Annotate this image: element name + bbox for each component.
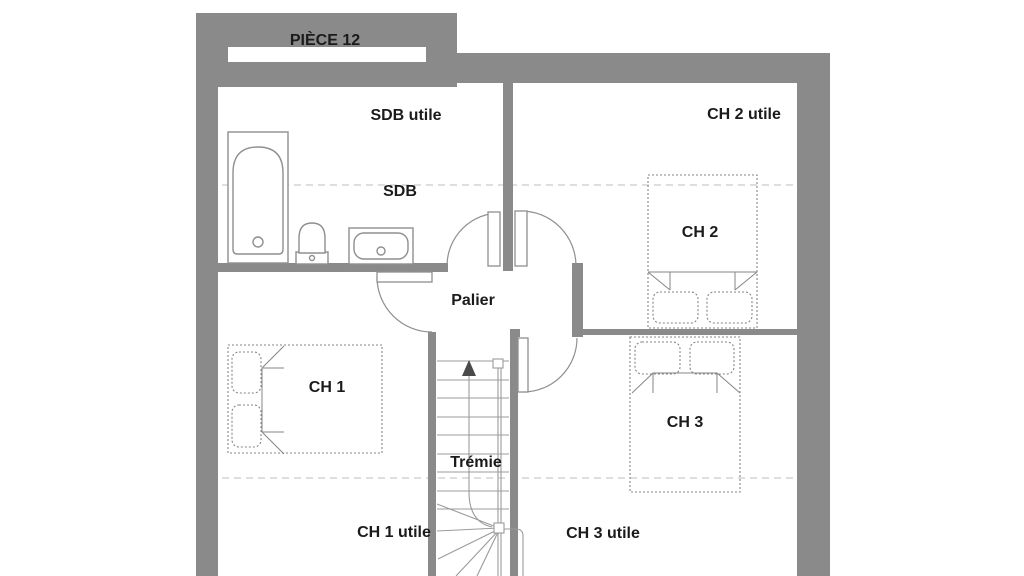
label-tremie: Trémie bbox=[450, 454, 502, 471]
label-ch1: CH 1 bbox=[309, 379, 346, 396]
stair-newel-bottom bbox=[494, 523, 504, 533]
bed-ch2-outline bbox=[648, 175, 757, 328]
label-ch3: CH 3 bbox=[667, 414, 704, 431]
door-palier-sdb bbox=[447, 212, 500, 266]
sink bbox=[349, 228, 413, 264]
door-palier-ch1-swing bbox=[377, 277, 432, 332]
label-sdb: SDB bbox=[383, 183, 417, 200]
label-palier: Palier bbox=[451, 292, 495, 309]
toilet-tank bbox=[296, 252, 328, 264]
wall-ch2-ch3 bbox=[583, 329, 797, 335]
bed-ch1 bbox=[228, 345, 382, 454]
floor-plan: PIÈCE 12 SDB utile CH 2 utile SDB CH 2 P… bbox=[0, 0, 1024, 576]
door-palier-ch3-swing bbox=[523, 338, 577, 392]
stair-walk-line bbox=[469, 376, 492, 527]
wall-left-outer bbox=[196, 13, 218, 576]
bed-ch1-outline bbox=[228, 345, 382, 453]
bed-ch1-pillow-top bbox=[232, 352, 261, 393]
wall-top-right bbox=[457, 53, 830, 83]
door-palier-ch2-leaf bbox=[515, 211, 527, 266]
stairs-up-arrow-icon bbox=[462, 360, 476, 376]
label-ch3-utile: CH 3 utile bbox=[566, 525, 640, 542]
bed-ch2-pillow-right bbox=[707, 292, 752, 323]
stair-winder-lines bbox=[437, 504, 499, 576]
door-palier-ch2-swing bbox=[521, 211, 576, 266]
wall-stair-right bbox=[510, 333, 518, 576]
bed-ch3-pillow-left bbox=[635, 342, 680, 374]
bed-ch1-pillow-bottom bbox=[232, 405, 261, 447]
bathtub bbox=[228, 132, 288, 263]
wall-palier-right bbox=[572, 263, 583, 337]
bed-ch3-pillow-right bbox=[690, 342, 734, 374]
bed-ch3-folds bbox=[632, 373, 740, 393]
bathtub-outline bbox=[228, 132, 288, 263]
wall-window-jamb-right bbox=[426, 47, 457, 62]
floor-plan-drawing: PIÈCE 12 SDB utile CH 2 utile SDB CH 2 P… bbox=[0, 0, 1024, 576]
label-sdb-utile: SDB utile bbox=[370, 107, 441, 124]
stair-newel-top bbox=[493, 359, 503, 368]
walls bbox=[196, 13, 830, 576]
bed-ch1-folds bbox=[262, 346, 284, 454]
wall-right-outer bbox=[797, 53, 830, 576]
door-palier-ch1 bbox=[377, 272, 432, 332]
bed-ch2-pillow-left bbox=[653, 292, 698, 323]
label-ch1-utile: CH 1 utile bbox=[357, 524, 431, 541]
room-labels: PIÈCE 12 SDB utile CH 2 utile SDB CH 2 P… bbox=[290, 30, 781, 542]
wall-below-window bbox=[196, 62, 457, 87]
bed-ch2 bbox=[648, 175, 757, 328]
wall-window-jamb-left bbox=[196, 47, 228, 62]
toilet bbox=[296, 223, 328, 264]
door-palier-ch1-leaf bbox=[377, 272, 432, 282]
wall-sdb-ch2-partition bbox=[503, 83, 513, 271]
label-ch2-utile: CH 2 utile bbox=[707, 106, 781, 123]
door-palier-ch2 bbox=[515, 211, 576, 266]
toilet-bowl bbox=[299, 223, 325, 253]
bed-ch2-folds bbox=[648, 272, 757, 290]
label-piece12: PIÈCE 12 bbox=[290, 30, 360, 49]
door-palier-ch3-leaf bbox=[518, 338, 528, 392]
label-ch2: CH 2 bbox=[682, 224, 719, 241]
door-palier-sdb-leaf bbox=[488, 212, 500, 266]
door-palier-ch3 bbox=[518, 338, 577, 392]
